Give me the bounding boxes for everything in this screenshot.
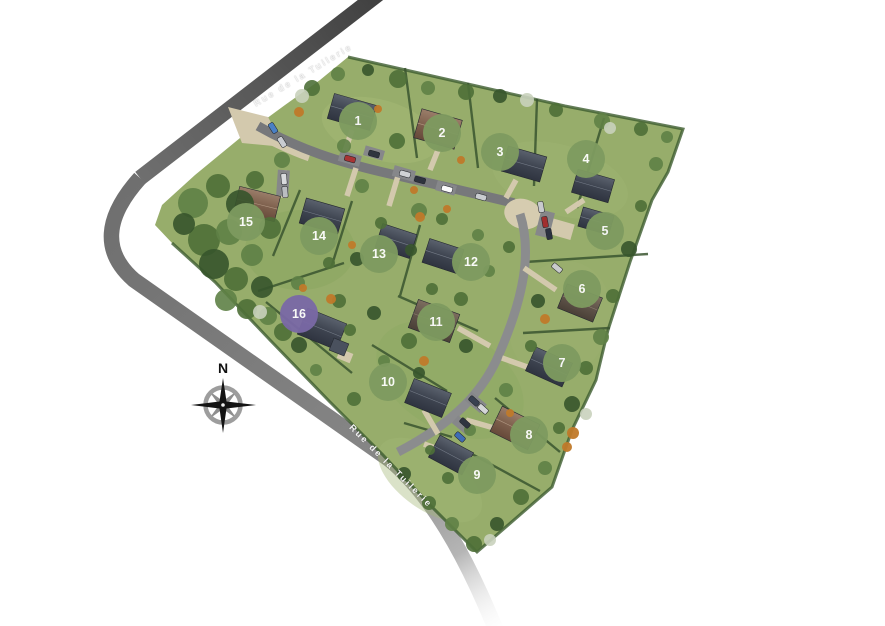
lot-marker-13[interactable]: 13 bbox=[360, 235, 398, 273]
lot-marker-1[interactable]: 1 bbox=[339, 102, 377, 140]
lot-marker-14[interactable]: 14 bbox=[300, 217, 338, 255]
lot-marker-15[interactable]: 15 bbox=[227, 203, 265, 241]
compass-star-icon bbox=[185, 367, 261, 443]
lot-marker-7[interactable]: 7 bbox=[543, 344, 581, 382]
lot-marker-6[interactable]: 6 bbox=[563, 270, 601, 308]
lot-marker-2[interactable]: 2 bbox=[423, 114, 461, 152]
lot-marker-9[interactable]: 9 bbox=[458, 456, 496, 494]
lot-marker-4[interactable]: 4 bbox=[567, 140, 605, 178]
lot-marker-5[interactable]: 5 bbox=[586, 212, 624, 250]
lot-marker-8[interactable]: 8 bbox=[510, 416, 548, 454]
compass-rose: N bbox=[185, 362, 261, 446]
lot-marker-12[interactable]: 12 bbox=[452, 243, 490, 281]
lot-marker-10[interactable]: 10 bbox=[369, 363, 407, 401]
compass-north-label: N bbox=[185, 360, 261, 376]
lot-marker-11[interactable]: 11 bbox=[417, 303, 455, 341]
lot-marker-3[interactable]: 3 bbox=[481, 133, 519, 171]
lot-marker-16[interactable]: 16 bbox=[280, 295, 318, 333]
site-plan: Rue de la Tuilerie Rue de la Tuilerie N … bbox=[0, 0, 885, 626]
